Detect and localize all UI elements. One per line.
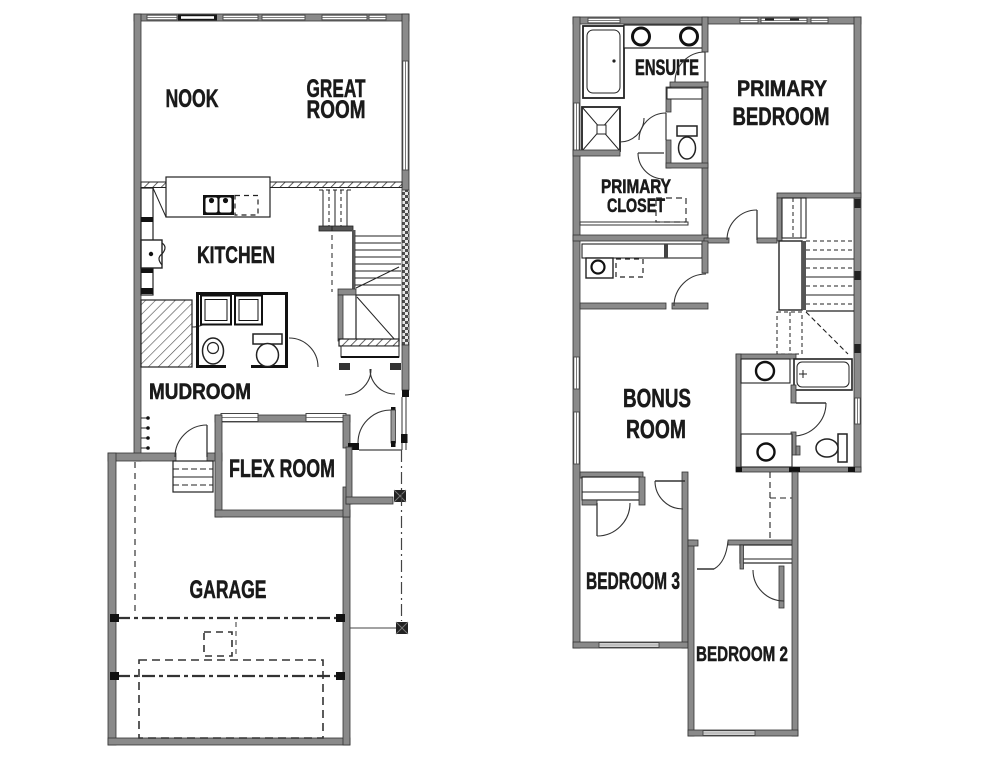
svg-text:KITCHEN: KITCHEN <box>197 242 275 269</box>
svg-text:FLEX ROOM: FLEX ROOM <box>229 455 335 483</box>
svg-text:ROOM: ROOM <box>307 96 366 124</box>
svg-text:NOOK: NOOK <box>166 85 219 113</box>
svg-text:BEDROOM 2: BEDROOM 2 <box>696 643 788 666</box>
svg-text:ROOM: ROOM <box>626 414 686 444</box>
svg-text:ENSUITE: ENSUITE <box>635 55 699 80</box>
svg-text:BEDROOM 3: BEDROOM 3 <box>586 568 680 595</box>
svg-text:PRIMARY: PRIMARY <box>737 76 827 101</box>
svg-text:PRIMARY: PRIMARY <box>601 177 671 198</box>
svg-text:GARAGE: GARAGE <box>190 576 267 604</box>
svg-text:BONUS: BONUS <box>623 383 691 413</box>
svg-text:MUDROOM: MUDROOM <box>149 379 251 404</box>
svg-text:BEDROOM: BEDROOM <box>733 103 830 131</box>
